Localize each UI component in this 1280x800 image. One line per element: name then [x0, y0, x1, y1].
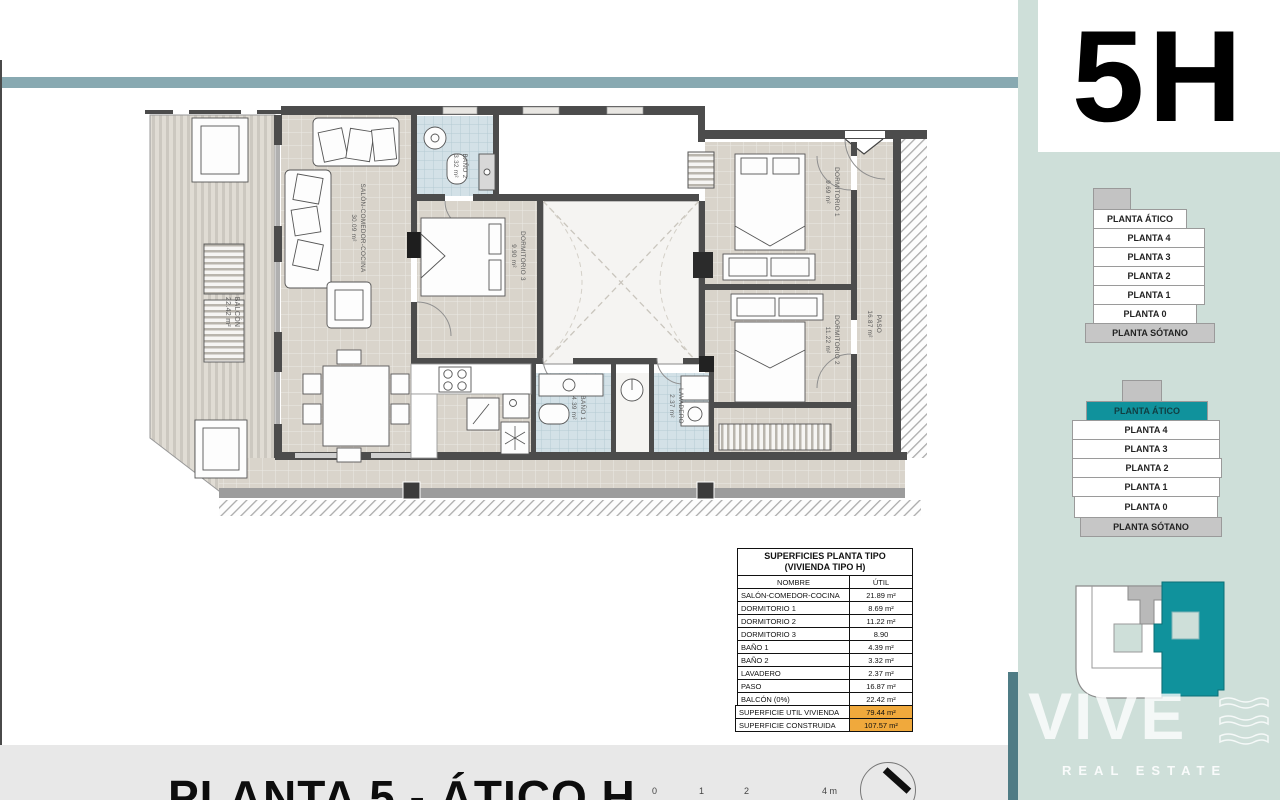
surfaces-table: SUPERFICIES PLANTA TIPO (VIVIENDA TIPO H…: [737, 548, 913, 706]
svg-text:2.37 m²: 2.37 m²: [668, 394, 675, 417]
table-row: DORMITORIO 18.69 m²: [738, 602, 912, 615]
unit-badge: 5H: [1038, 0, 1280, 152]
stack-roof-box: [1122, 380, 1162, 402]
floor-row-p4[interactable]: PLANTA 4: [1072, 420, 1220, 440]
svg-text:9.69 m²: 9.69 m²: [824, 180, 831, 203]
surfaces-table-title: SUPERFICIES PLANTA TIPO (VIVIENDA TIPO H…: [738, 549, 912, 576]
floor-row-atico-selected[interactable]: PLANTA ÁTICO: [1086, 401, 1208, 421]
floor-plan-svg: BALCÓN 22.42 m² SALÓN-COMEDOR-COCINA 30.…: [145, 106, 935, 521]
surfaces-table-title-line2: (VIVIENDA TIPO H): [738, 562, 912, 573]
plan-sheet: BALCÓN 22.42 m² SALÓN-COMEDOR-COCINA 30.…: [0, 0, 1280, 800]
floor-row-sotano[interactable]: PLANTA SÓTANO: [1080, 517, 1222, 537]
table-row: BALCÓN (0%)22.42 m²: [738, 693, 912, 705]
total-row-util: SUPERFICIE UTIL VIVIENDA79.44 m²: [736, 706, 912, 719]
col-util: ÚTIL: [850, 576, 912, 588]
floor-row-p1[interactable]: PLANTA 1: [1093, 285, 1205, 305]
scale-tick-0: 0: [652, 786, 657, 796]
floor-stack-selected: PLANTA ÁTICO PLANTA 4 PLANTA 3 PLANTA 2 …: [1072, 380, 1224, 537]
floor-stack-overview: PLANTA ÁTICO PLANTA 4 PLANTA 3 PLANTA 2 …: [1085, 188, 1215, 343]
header-band: [0, 77, 1018, 88]
table-row: LAVADERO2.37 m²: [738, 667, 912, 680]
table-row: BAÑO 14.39 m²: [738, 641, 912, 654]
floor-row-atico[interactable]: PLANTA ÁTICO: [1093, 209, 1187, 229]
floor-row-p3[interactable]: PLANTA 3: [1093, 247, 1205, 267]
svg-text:DORMITORIO 2: DORMITORIO 2: [833, 315, 840, 365]
watermark-edge-bar: [1008, 672, 1018, 800]
svg-text:PASO: PASO: [875, 315, 882, 333]
table-row: SALÓN-COMEDOR-COCINA21.89 m²: [738, 589, 912, 602]
table-row: DORMITORIO 211.22 m²: [738, 615, 912, 628]
floor-row-p0[interactable]: PLANTA 0: [1093, 304, 1197, 324]
table-row: BAÑO 23.32 m²: [738, 654, 912, 667]
surfaces-table-header: NOMBRE ÚTIL: [738, 576, 912, 589]
svg-text:3.32 m²: 3.32 m²: [452, 154, 459, 177]
floor-row-p3[interactable]: PLANTA 3: [1072, 439, 1220, 459]
svg-text:30.09 m²: 30.09 m²: [350, 214, 357, 241]
svg-text:16.87 m²: 16.87 m²: [866, 310, 873, 337]
floor-plan: BALCÓN 22.42 m² SALÓN-COMEDOR-COCINA 30.…: [145, 106, 935, 521]
svg-text:9.90 m²: 9.90 m²: [510, 244, 517, 267]
svg-text:BAÑO 2: BAÑO 2: [461, 154, 470, 179]
floor-row-sotano[interactable]: PLANTA SÓTANO: [1085, 323, 1215, 343]
sheet-edge-line: [0, 60, 2, 745]
watermark-tagline: REAL ESTATE: [1062, 763, 1227, 778]
scale-tick-1: 1: [699, 786, 704, 796]
floor-row-p2[interactable]: PLANTA 2: [1072, 458, 1222, 478]
watermark-brand: VIVE: [1028, 678, 1186, 754]
stack-roof-box: [1093, 188, 1131, 210]
table-row: PASO16.87 m²: [738, 680, 912, 693]
scale-tick-4m: 4 m: [822, 786, 837, 796]
surfaces-table-title-line1: SUPERFICIES PLANTA TIPO: [738, 551, 912, 562]
svg-text:SALÓN-COMEDOR-COCINA: SALÓN-COMEDOR-COCINA: [359, 184, 368, 273]
svg-text:DORMITORIO 1: DORMITORIO 1: [833, 167, 840, 217]
total-row-construida: SUPERFICIE CONSTRUIDA107.57 m²: [736, 719, 912, 731]
table-row: DORMITORIO 38.90: [738, 628, 912, 641]
scale-tick-2: 2: [744, 786, 749, 796]
surfaces-totals: SUPERFICIE UTIL VIVIENDA79.44 m² SUPERFI…: [735, 705, 913, 732]
svg-text:LAVADERO: LAVADERO: [677, 388, 684, 424]
wave-lines-icon: [1218, 694, 1270, 748]
svg-text:BAÑO 1: BAÑO 1: [579, 396, 588, 421]
floor-row-p2[interactable]: PLANTA 2: [1093, 266, 1205, 286]
floor-row-p0[interactable]: PLANTA 0: [1074, 496, 1218, 518]
svg-text:BALCÓN: BALCÓN: [233, 297, 242, 328]
floor-row-p1[interactable]: PLANTA 1: [1072, 477, 1220, 497]
floor-row-p4[interactable]: PLANTA 4: [1093, 228, 1205, 248]
page-title: PLANTA 5 - ÁTICO H: [168, 770, 636, 800]
svg-text:4.39 m²: 4.39 m²: [570, 396, 577, 419]
svg-text:22.42 m²: 22.42 m²: [224, 297, 231, 327]
svg-text:11.22 m²: 11.22 m²: [824, 327, 831, 354]
svg-text:DORMITORIO 3: DORMITORIO 3: [519, 231, 526, 281]
col-nombre: NOMBRE: [738, 576, 850, 588]
